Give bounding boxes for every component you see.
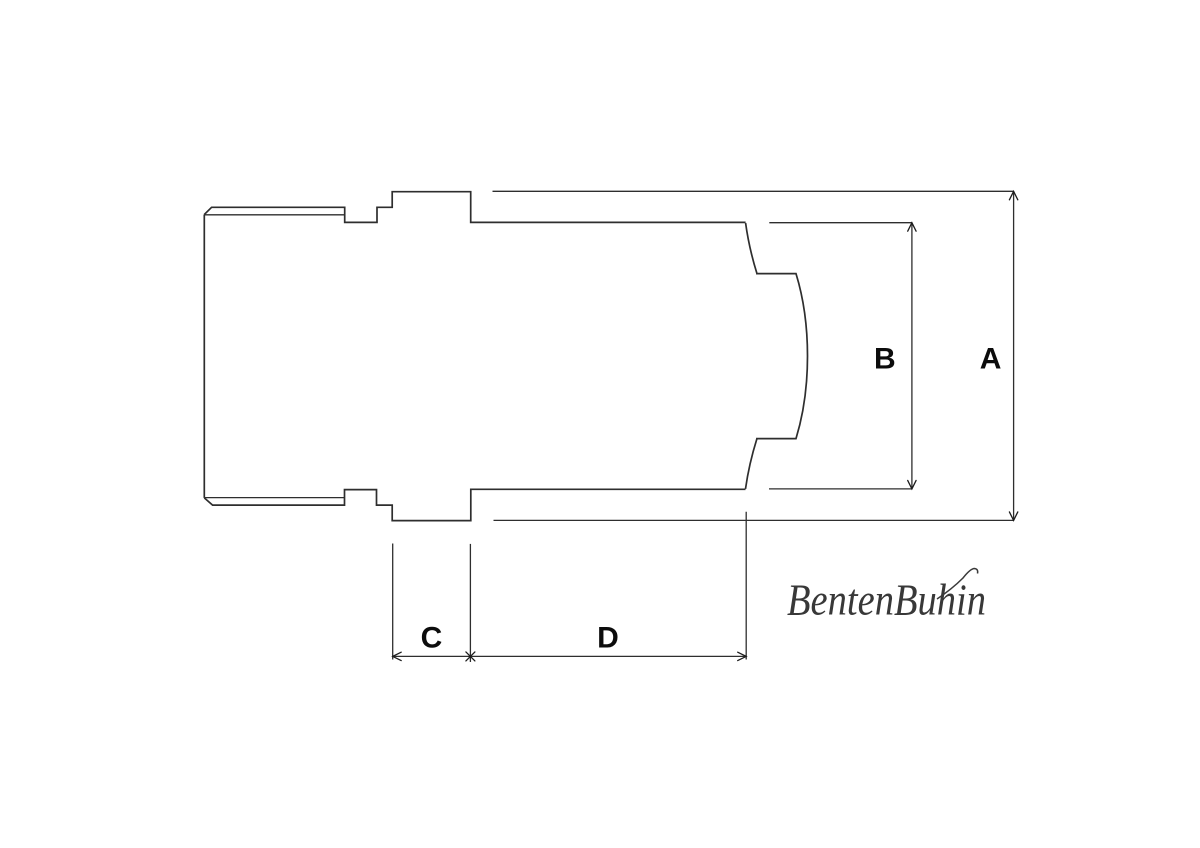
svg-text:D: D <box>597 621 619 654</box>
svg-text:C: C <box>421 621 443 654</box>
svg-text:BentenBuhin: BentenBuhin <box>787 576 986 625</box>
svg-text:B: B <box>874 342 896 375</box>
svg-text:A: A <box>980 342 1002 375</box>
